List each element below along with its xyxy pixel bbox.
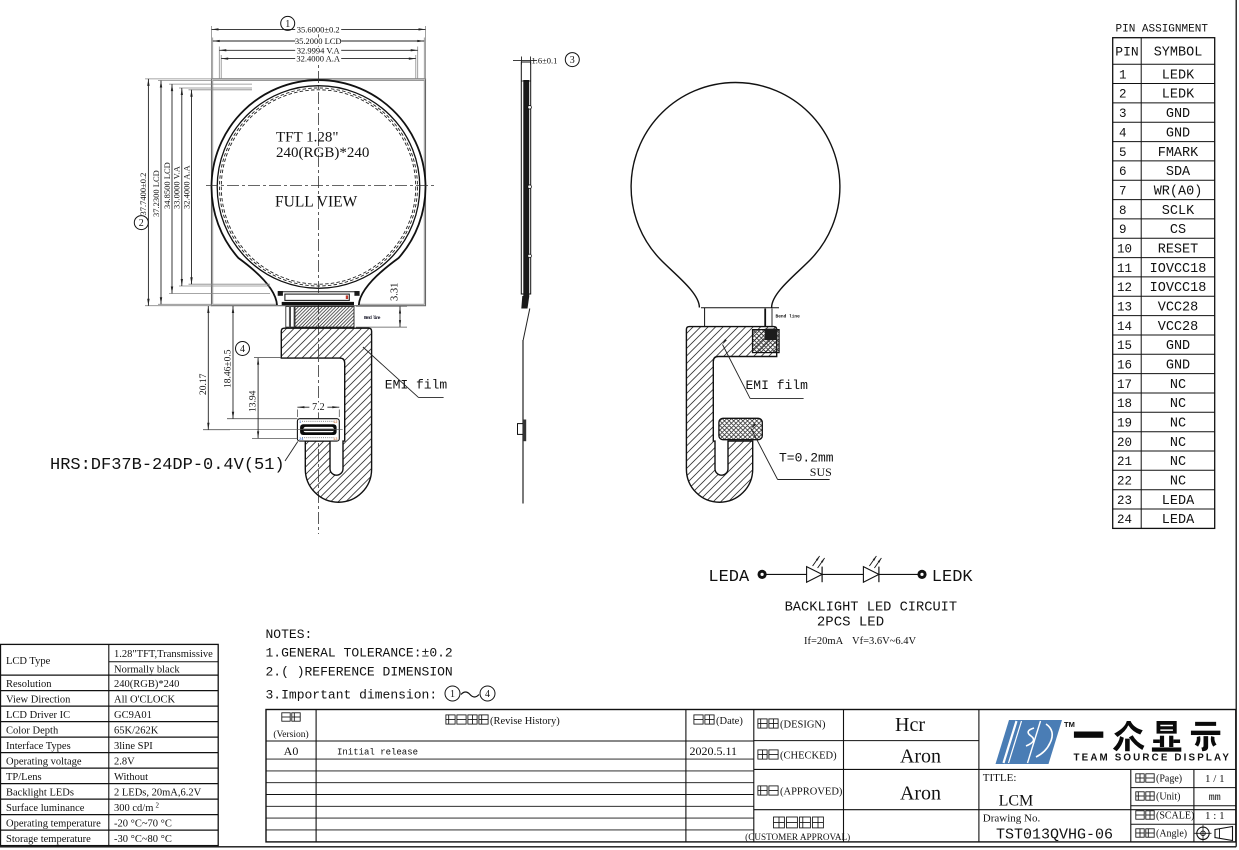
- svg-text:32.4000 A.A: 32.4000 A.A: [181, 164, 191, 209]
- svg-text:3: 3: [570, 55, 575, 66]
- svg-text:GND: GND: [1166, 359, 1190, 374]
- svg-text:8: 8: [1119, 204, 1127, 218]
- svg-text:1 / 1: 1 / 1: [1205, 773, 1225, 785]
- svg-text:NC: NC: [1170, 436, 1186, 451]
- svg-text:Hcr: Hcr: [895, 714, 925, 736]
- svg-text:33.0000 V.A: 33.0000 V.A: [172, 165, 182, 209]
- svg-text:Color Depth: Color Depth: [6, 725, 59, 736]
- svg-text:7: 7: [1119, 184, 1127, 198]
- svg-text:SUS: SUS: [810, 465, 832, 479]
- svg-text:2: 2: [156, 801, 160, 809]
- svg-text:PIN: PIN: [1115, 45, 1138, 60]
- svg-text:Initial release: Initial release: [337, 748, 418, 758]
- svg-text:mm: mm: [1209, 793, 1221, 804]
- svg-text:Backlight LEDs: Backlight LEDs: [6, 787, 74, 798]
- svg-text:12: 12: [333, 421, 338, 425]
- svg-text:Surface luminance: Surface luminance: [6, 803, 85, 814]
- svg-text:1: 1: [285, 19, 290, 30]
- svg-text:Vf=3.6V~6.4V: Vf=3.6V~6.4V: [852, 636, 917, 647]
- svg-text:13.94: 13.94: [249, 390, 259, 412]
- svg-text:300 cd/m: 300 cd/m: [114, 803, 153, 814]
- svg-text:(Angle): (Angle): [1156, 829, 1187, 840]
- svg-text:(DESIGN): (DESIGN): [780, 720, 826, 731]
- svg-text:LEDK: LEDK: [1162, 68, 1195, 83]
- svg-text:2020.5.11: 2020.5.11: [690, 744, 738, 758]
- svg-text:Interface Types: Interface Types: [6, 741, 71, 752]
- svg-text:EMI film: EMI film: [746, 378, 809, 393]
- svg-text:LEDA: LEDA: [708, 568, 750, 587]
- svg-text:View Direction: View Direction: [6, 694, 71, 705]
- svg-text:35.6000±0.2: 35.6000±0.2: [297, 24, 340, 34]
- svg-text:9: 9: [1119, 223, 1127, 237]
- svg-text:22: 22: [1117, 475, 1132, 489]
- svg-text:13: 13: [333, 438, 338, 442]
- svg-text:TST013QVHG-06: TST013QVHG-06: [996, 827, 1113, 844]
- svg-text:TITLE:: TITLE:: [983, 772, 1017, 784]
- svg-text:LEDA: LEDA: [1162, 513, 1195, 528]
- svg-text:NC: NC: [1170, 378, 1186, 393]
- svg-text:5: 5: [1119, 146, 1127, 160]
- svg-text:2PCS LED: 2PCS LED: [817, 615, 884, 631]
- svg-text:HRS:DF37B-24DP-0.4V(51): HRS:DF37B-24DP-0.4V(51): [50, 456, 285, 475]
- svg-text:2 LEDs, 20mA,6.2V: 2 LEDs, 20mA,6.2V: [114, 787, 202, 798]
- svg-text:(Version): (Version): [273, 729, 308, 740]
- svg-text:LCD Driver IC: LCD Driver IC: [6, 710, 70, 721]
- svg-text:EMI film: EMI film: [385, 378, 448, 393]
- svg-text:Bend line: Bend line: [776, 314, 801, 320]
- svg-text:FMARK: FMARK: [1158, 146, 1199, 161]
- svg-text:10: 10: [1117, 243, 1132, 257]
- svg-text:SDA: SDA: [1166, 165, 1191, 180]
- svg-text:32.4000 A.A: 32.4000 A.A: [296, 54, 341, 64]
- svg-text:Resolution: Resolution: [6, 679, 52, 690]
- svg-text:NC: NC: [1170, 475, 1186, 490]
- svg-text:IOVCC18: IOVCC18: [1150, 281, 1207, 296]
- svg-text:LCD Type: LCD Type: [6, 656, 51, 667]
- svg-text:Operating voltage: Operating voltage: [6, 756, 82, 767]
- svg-text:SYMBOL: SYMBOL: [1154, 46, 1203, 61]
- svg-text:GND: GND: [1166, 107, 1190, 122]
- svg-text:GC9A01: GC9A01: [114, 710, 152, 721]
- svg-text:NC: NC: [1170, 455, 1186, 470]
- svg-text:Aron: Aron: [900, 746, 941, 768]
- svg-text:WR(A0): WR(A0): [1154, 184, 1203, 199]
- svg-text:VCC28: VCC28: [1158, 301, 1199, 316]
- svg-text:18: 18: [1117, 397, 1132, 411]
- svg-text:GND: GND: [1166, 339, 1190, 354]
- svg-text:LEDK: LEDK: [932, 568, 974, 587]
- svg-text:A0: A0: [284, 744, 299, 758]
- svg-text:1: 1: [1119, 68, 1127, 82]
- svg-text:19: 19: [1117, 417, 1132, 431]
- svg-text:TP/Lens: TP/Lens: [6, 772, 42, 783]
- svg-text:17: 17: [1117, 378, 1132, 392]
- svg-text:(Date): (Date): [716, 716, 743, 727]
- svg-text:1 : 1: 1 : 1: [1205, 810, 1225, 822]
- svg-text:12: 12: [1117, 281, 1132, 295]
- svg-text:65K/262K: 65K/262K: [114, 725, 159, 736]
- svg-text:(APPROVED): (APPROVED): [780, 787, 843, 798]
- svg-text:PIN ASSIGNMENT: PIN ASSIGNMENT: [1116, 24, 1209, 36]
- svg-text:LEDK: LEDK: [1162, 88, 1195, 103]
- svg-text:4: 4: [485, 689, 490, 700]
- svg-text:NC: NC: [1170, 417, 1186, 432]
- svg-text:4: 4: [1119, 126, 1127, 140]
- svg-text:(Page): (Page): [1156, 774, 1182, 785]
- svg-text:Bend line: Bend line: [364, 315, 381, 321]
- svg-text:Aron: Aron: [900, 783, 941, 805]
- svg-text:1: 1: [450, 689, 455, 700]
- svg-text:If=20mA: If=20mA: [804, 636, 844, 647]
- svg-text:2: 2: [1119, 88, 1127, 102]
- svg-text:NOTES:: NOTES:: [266, 627, 313, 642]
- svg-text:VCC28: VCC28: [1158, 320, 1199, 335]
- svg-text:-20 °C~70 °C: -20 °C~70 °C: [114, 818, 172, 829]
- svg-text:Without: Without: [114, 772, 148, 783]
- svg-text:37.7400±0.2: 37.7400±0.2: [138, 173, 148, 216]
- svg-text:4: 4: [240, 344, 245, 355]
- svg-text:2.( )REFERENCE DIMENSION: 2.( )REFERENCE DIMENSION: [266, 665, 453, 680]
- svg-text:6: 6: [1119, 165, 1127, 179]
- svg-text:240(RGB)*240: 240(RGB)*240: [276, 145, 369, 161]
- svg-text:Operating temperature: Operating temperature: [6, 818, 101, 829]
- svg-text:(Revise History): (Revise History): [490, 716, 560, 727]
- svg-text:3: 3: [1119, 107, 1127, 121]
- svg-text:18.46±0.5: 18.46±0.5: [224, 349, 234, 388]
- svg-text:LEDA: LEDA: [1162, 494, 1195, 509]
- svg-text:TM: TM: [1064, 720, 1075, 729]
- svg-text:(CHECKED): (CHECKED): [780, 751, 837, 762]
- svg-text:GND: GND: [1166, 126, 1190, 141]
- svg-text:2: 2: [139, 218, 144, 229]
- svg-text:TFT 1.28": TFT 1.28": [276, 130, 339, 146]
- svg-text:1.28"TFT,Transmissive: 1.28"TFT,Transmissive: [114, 649, 213, 660]
- svg-text:240(RGB)*240: 240(RGB)*240: [114, 679, 179, 690]
- svg-text:34.8500 LCD: 34.8500 LCD: [162, 162, 172, 209]
- svg-text:CS: CS: [1170, 223, 1186, 238]
- svg-text:7.2: 7.2: [312, 402, 325, 413]
- svg-text:24: 24: [299, 438, 304, 442]
- svg-text:LCM: LCM: [999, 793, 1034, 810]
- svg-text:37.2300 LCD: 37.2300 LCD: [151, 170, 161, 217]
- svg-text:NC: NC: [1170, 397, 1186, 412]
- svg-text:21: 21: [1117, 455, 1132, 469]
- svg-text:(CUSTOMER APPROVAL): (CUSTOMER APPROVAL): [745, 832, 850, 842]
- svg-text:20: 20: [1117, 436, 1132, 450]
- svg-text:3.31: 3.31: [389, 283, 400, 301]
- svg-text:IOVCC18: IOVCC18: [1150, 262, 1207, 277]
- svg-text:(Unit): (Unit): [1156, 792, 1180, 803]
- svg-text:Drawing No.: Drawing No.: [983, 813, 1041, 825]
- svg-text:-30 °C~80 °C: -30 °C~80 °C: [114, 834, 172, 845]
- svg-text:BACKLIGHT LED CIRCUIT: BACKLIGHT LED CIRCUIT: [785, 601, 958, 616]
- svg-text:Normally black: Normally black: [114, 664, 180, 675]
- svg-text:(SCALE): (SCALE): [1156, 811, 1194, 822]
- svg-text:RESET: RESET: [1158, 243, 1199, 258]
- svg-text:2.8V: 2.8V: [114, 756, 135, 767]
- svg-text:15: 15: [1117, 339, 1132, 353]
- svg-text:All O'CLOCK: All O'CLOCK: [114, 694, 176, 705]
- svg-text:11: 11: [1117, 262, 1132, 276]
- svg-text:SCLK: SCLK: [1162, 204, 1195, 219]
- svg-text:14: 14: [1117, 320, 1132, 334]
- svg-text:24: 24: [1117, 513, 1132, 527]
- svg-text:16: 16: [1117, 359, 1132, 373]
- svg-text:T=0.2mm: T=0.2mm: [779, 451, 834, 466]
- svg-text:13: 13: [1117, 301, 1132, 315]
- svg-text:23: 23: [1117, 494, 1132, 508]
- svg-text:TEAM SOURCE DISPLAY: TEAM SOURCE DISPLAY: [1074, 753, 1232, 764]
- svg-text:1.GENERAL TOLERANCE:±0.2: 1.GENERAL TOLERANCE:±0.2: [266, 646, 453, 661]
- svg-text:Storage temperature: Storage temperature: [6, 834, 91, 845]
- svg-text:3.Important dimension:: 3.Important dimension:: [266, 688, 438, 703]
- svg-text:3line SPI: 3line SPI: [114, 741, 153, 752]
- svg-text:FULL VIEW: FULL VIEW: [275, 194, 358, 211]
- svg-text:1.6±0.1: 1.6±0.1: [532, 55, 558, 65]
- svg-text:20.17: 20.17: [199, 373, 209, 395]
